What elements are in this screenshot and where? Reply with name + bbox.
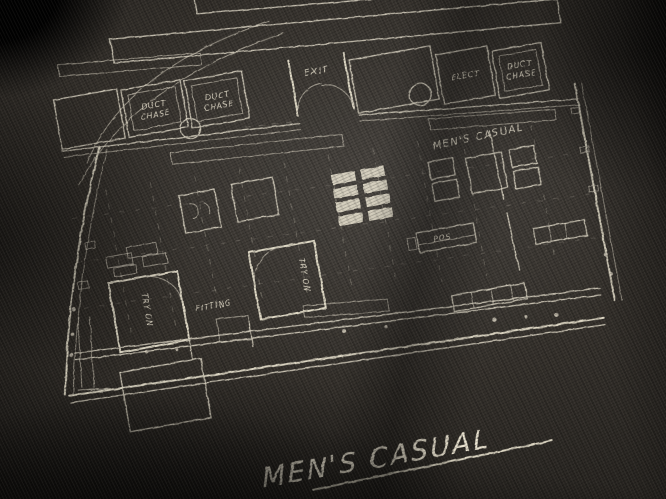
top-hatch-bands (50, 0, 587, 185)
left-wall (24, 147, 141, 395)
plan-title-block: MEN'S CASUAL (258, 413, 553, 498)
try-on-label: TRY ON (297, 257, 312, 292)
back-counter (452, 283, 528, 312)
display-rack-pair (509, 145, 541, 189)
try-on-room-right: TRY ON (249, 241, 326, 319)
entry-vestibule (66, 297, 211, 439)
exit-label: EXIT (304, 65, 330, 79)
elect-label: ELECT (451, 69, 481, 83)
wall-shelving-band (170, 123, 344, 177)
low-cabinet (303, 291, 389, 325)
fitting-label: FITTING (195, 298, 232, 313)
escalator-detail (179, 189, 221, 233)
utility-room-row: DUCT CHASE DUCT CHASE EXIT (54, 10, 582, 205)
right-wall (575, 83, 615, 301)
plan-title: MEN'S CASUAL (261, 423, 491, 494)
display-table-cluster (331, 166, 393, 227)
fabric-blueprint-photo: DUCT CHASE DUCT CHASE EXIT (0, 0, 666, 499)
floor-plan-drawing: DUCT CHASE DUCT CHASE EXIT (0, 0, 666, 499)
pos-label: POS (433, 232, 452, 244)
storage-room (54, 89, 126, 149)
try-on-label: TRY ON (140, 292, 155, 327)
pos-counter: POS (406, 223, 476, 255)
interior-wall (490, 130, 520, 271)
department-label: MEN'S CASUAL (432, 122, 525, 152)
duct-chase-room-1: DUCT CHASE (121, 80, 188, 138)
display-rack-pair (428, 158, 460, 202)
display-fixture (231, 177, 279, 222)
exit-doors: EXIT (235, 51, 354, 131)
fitting-rooms: TRY ON TRY ON FITTING (103, 215, 331, 372)
round-column (407, 81, 432, 106)
shelf-stack (105, 241, 169, 278)
floor-fixtures: POS (177, 117, 596, 355)
elect-room: ELECT (436, 46, 496, 104)
plan-boundary (24, 62, 630, 442)
side-counter (533, 220, 587, 245)
duct-chase-room-3: DUCT CHASE (492, 42, 550, 98)
